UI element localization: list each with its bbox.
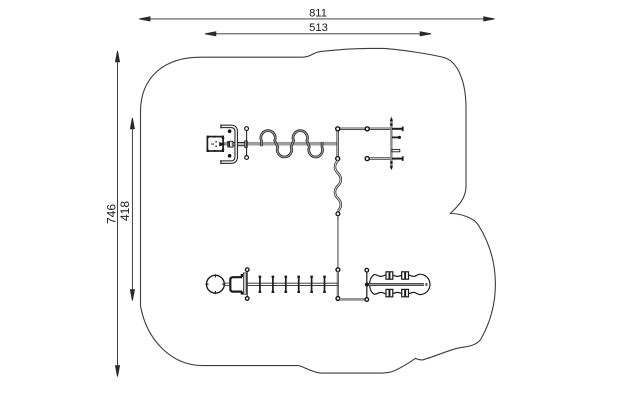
svg-text:746: 746 — [105, 204, 119, 224]
svg-text:513: 513 — [309, 22, 328, 34]
svg-text:418: 418 — [118, 201, 132, 221]
svg-text:811: 811 — [309, 7, 327, 19]
